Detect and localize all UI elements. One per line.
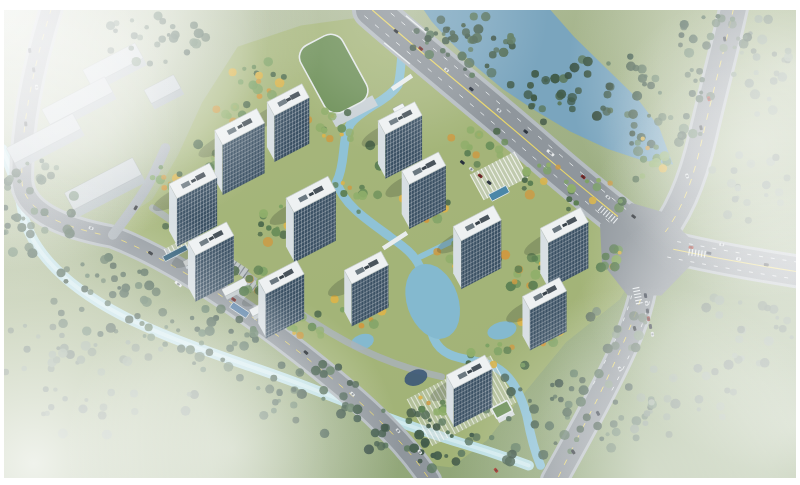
aerial-rendering-scene bbox=[4, 10, 796, 478]
render-layers bbox=[4, 10, 796, 478]
aerial-rendering-frame bbox=[0, 0, 800, 485]
